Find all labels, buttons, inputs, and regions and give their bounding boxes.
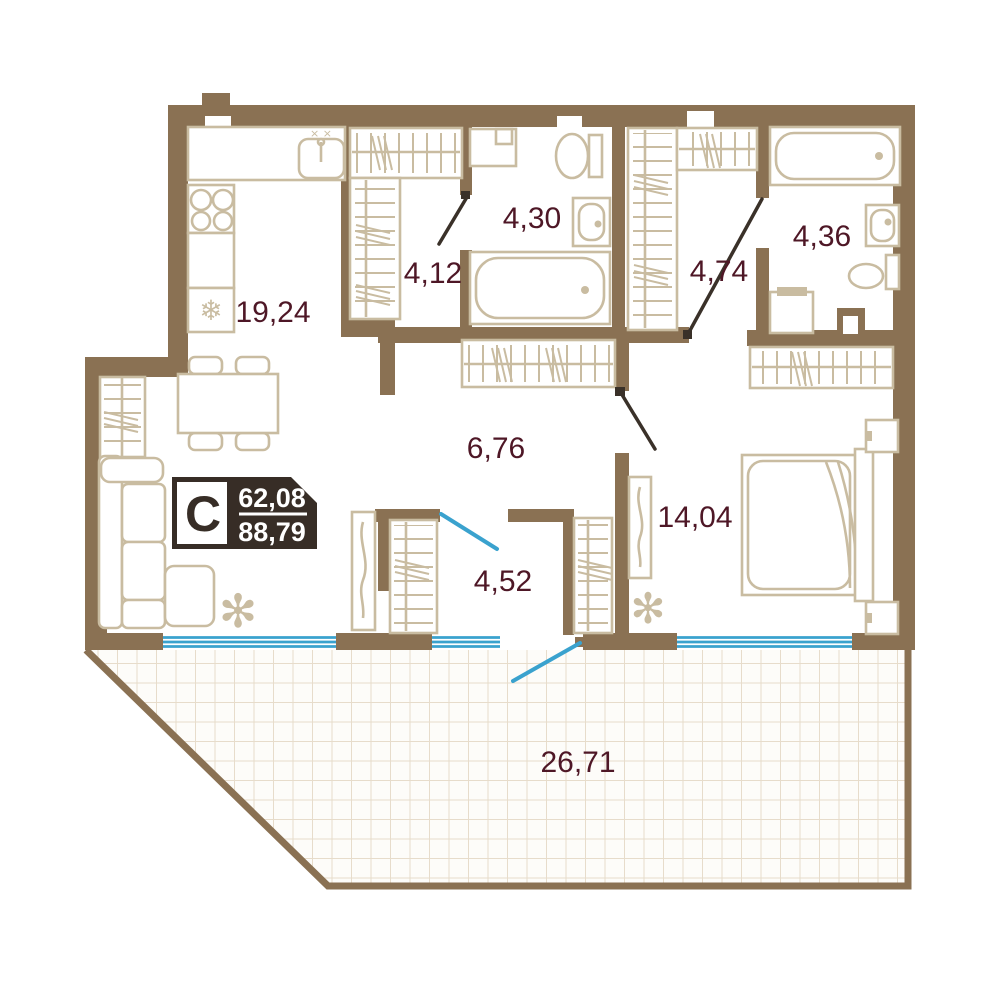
wardrobe-unit-top-left [350, 128, 462, 178]
kitchen-counter: × × [188, 127, 345, 180]
washing-machine-left-bath [470, 129, 516, 166]
glass-door-dressing-room [441, 514, 497, 549]
dining-chair [189, 357, 222, 374]
washing-machine-right-bath [770, 287, 813, 333]
windows [163, 635, 852, 649]
fridge-snowflake-icon: ❄ [199, 294, 222, 327]
window-dressing-room [432, 635, 500, 649]
nightstand [866, 602, 898, 634]
stove [188, 185, 234, 233]
dining-chair [236, 357, 269, 374]
wardrobe-unit-right-vertical [628, 128, 677, 330]
area-badge: C 62,08 88,79 [172, 477, 317, 549]
fridge: ❄ [188, 288, 234, 332]
door-left-bathroom [439, 191, 470, 244]
floor-plan-svg: × × ❄ ✻ [0, 0, 1000, 1000]
badge-area-bottom: 88,79 [238, 517, 306, 547]
wardrobe-corridor [574, 518, 612, 633]
room-label-wardrobe-right: 4,74 [690, 255, 748, 288]
sink-marks: × × [310, 127, 332, 140]
badge-section-letter: C [185, 486, 221, 542]
window-bedroom [677, 635, 852, 649]
dining-chair [236, 433, 269, 450]
floor-plan-page: × × ❄ ✻ [0, 0, 1000, 1000]
bathtub-right-bath [770, 127, 900, 185]
terrace [86, 650, 908, 886]
wardrobe-dressing-room [390, 520, 437, 633]
wardrobe-unit-left-vertical [350, 178, 400, 319]
room-label-wardrobe-left: 4,12 [404, 257, 462, 290]
door-bedroom [615, 387, 655, 449]
room-label-dressing-room: 4,52 [474, 565, 532, 598]
dining-table [178, 357, 278, 450]
dining-chair [189, 433, 222, 450]
tv-cabinet [100, 377, 145, 457]
room-label-bathroom-left: 4,30 [503, 202, 561, 235]
wardrobe-bedroom [750, 347, 893, 388]
washbasin-left-bath [573, 198, 610, 246]
kitchen-cabinet [188, 233, 234, 288]
mirror-dressing-room [352, 512, 375, 630]
plant-icon: ✻ [630, 584, 665, 633]
room-label-bedroom: 14,04 [657, 501, 732, 534]
bed-headboard [855, 449, 873, 601]
wardrobe-hallway [462, 340, 615, 387]
room-label-hallway: 6,76 [467, 432, 525, 465]
dresser-bedroom [629, 477, 651, 578]
badge-area-top: 62,08 [238, 483, 306, 513]
room-label-kitchen-living: 19,24 [235, 296, 310, 329]
wardrobe-unit-top-right [677, 128, 757, 170]
plant-icon: ✻ [219, 584, 258, 638]
room-label-terrace: 26,71 [540, 746, 615, 779]
toilet-left-bath [556, 134, 602, 178]
room-label-bathroom-right: 4,36 [793, 220, 851, 253]
washbasin-right-bath [866, 205, 899, 246]
bathtub-left-bath [470, 252, 610, 324]
toilet-right-bath [849, 255, 899, 289]
sofa-ottoman [165, 566, 214, 626]
nightstand [866, 420, 898, 452]
bed [742, 449, 873, 601]
